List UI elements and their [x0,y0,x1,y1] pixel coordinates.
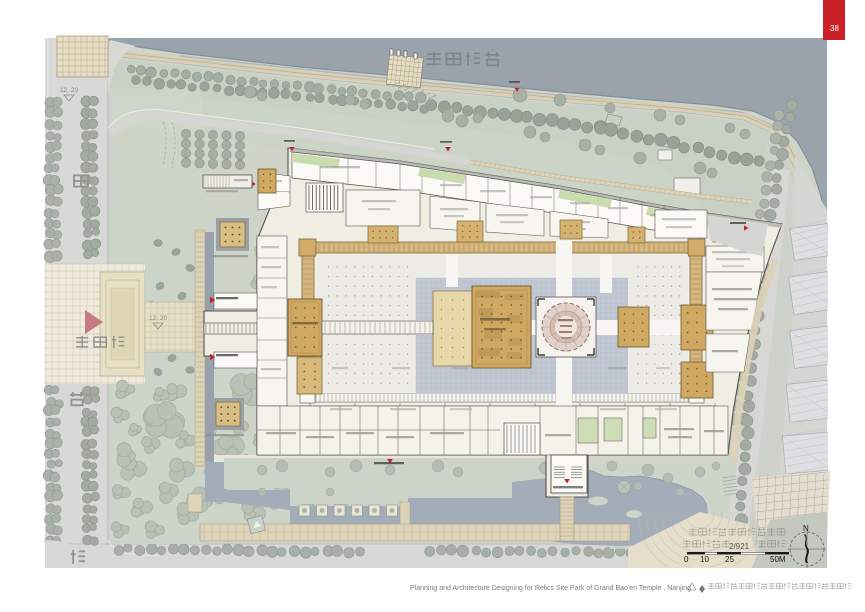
svg-text:2/921: 2/921 [729,542,750,551]
svg-text:12. 20: 12. 20 [60,87,78,94]
svg-text:0: 0 [684,555,689,564]
svg-text:Planning and Architecture Desi: Planning and Architecture Designing for … [410,585,691,592]
svg-text:10: 10 [700,555,709,564]
svg-text:38: 38 [830,24,839,33]
svg-text:N: N [803,524,809,533]
svg-text:12. 20: 12. 20 [149,315,167,322]
svg-text:50M: 50M [770,555,786,564]
svg-text:25: 25 [725,555,734,564]
